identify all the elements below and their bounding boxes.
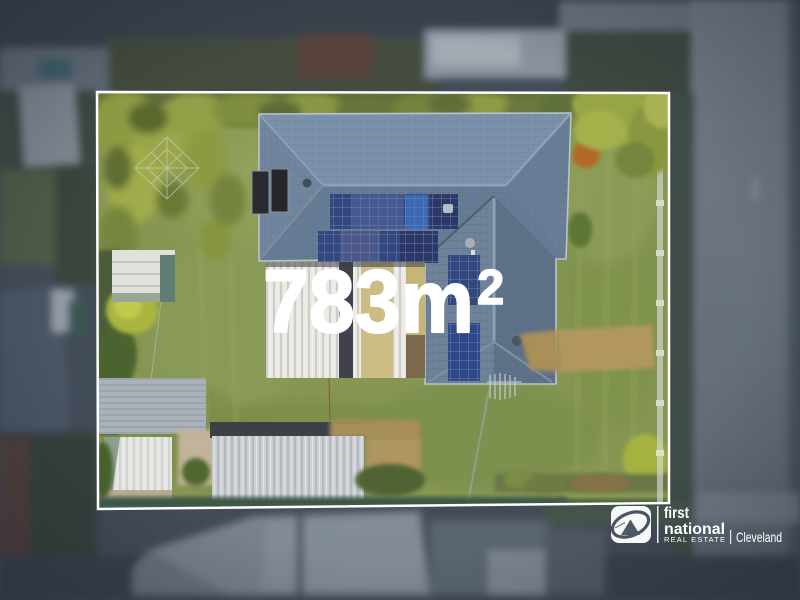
svg-text:783m: 783m [263, 251, 474, 351]
svg-text:Cleveland: Cleveland [736, 529, 782, 545]
svg-text:2: 2 [477, 261, 504, 315]
svg-text:first: first [664, 505, 690, 522]
svg-text:REAL ESTATE: REAL ESTATE [664, 535, 725, 544]
